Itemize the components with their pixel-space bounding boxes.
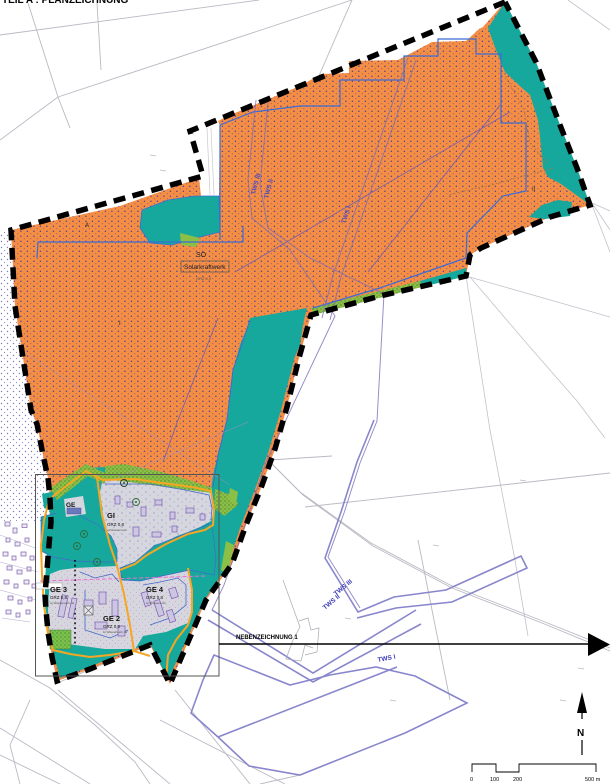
- svg-text:a) Wasserwerk da: a) Wasserwerk da: [103, 630, 127, 634]
- svg-text:TEIL A : PLANZEICHNUNG: TEIL A : PLANZEICHNUNG: [2, 0, 129, 6]
- svg-text:SO: SO: [196, 252, 207, 259]
- svg-text:A: A: [85, 223, 89, 229]
- svg-text:GRZ 0,8: GRZ 0,8: [107, 522, 125, 527]
- svg-text:Solarkraftwerk: Solarkraftwerk: [184, 264, 226, 271]
- svg-text:GI: GI: [107, 511, 115, 520]
- svg-text:0: 0: [470, 777, 473, 783]
- svg-text:GRZ 0,8: GRZ 0,8: [146, 595, 164, 600]
- svg-text:GRZ 0,9: GRZ 0,9: [196, 276, 212, 281]
- svg-text:200: 200: [513, 777, 522, 783]
- svg-text:NEBENZEICHNUNG 1: NEBENZEICHNUNG 1: [236, 635, 298, 641]
- svg-text:GE 2: GE 2: [103, 614, 120, 623]
- svg-text:a) Wasserwerk da: a) Wasserwerk da: [50, 601, 74, 605]
- svg-text:GRZ 0,8: GRZ 0,8: [103, 624, 121, 629]
- svg-text:a) Wasserwerk: a) Wasserwerk: [107, 528, 127, 532]
- svg-text:N: N: [577, 728, 584, 739]
- svg-text:100: 100: [490, 777, 499, 783]
- svg-text:a) Wasserwerk: a) Wasserwerk: [146, 601, 166, 605]
- svg-text:GE 3: GE 3: [50, 585, 67, 594]
- svg-text:GRZ 0,8: GRZ 0,8: [50, 595, 68, 600]
- svg-text:500 m: 500 m: [585, 777, 601, 783]
- svg-text:II: II: [532, 187, 536, 193]
- svg-text:GE 4: GE 4: [146, 585, 164, 594]
